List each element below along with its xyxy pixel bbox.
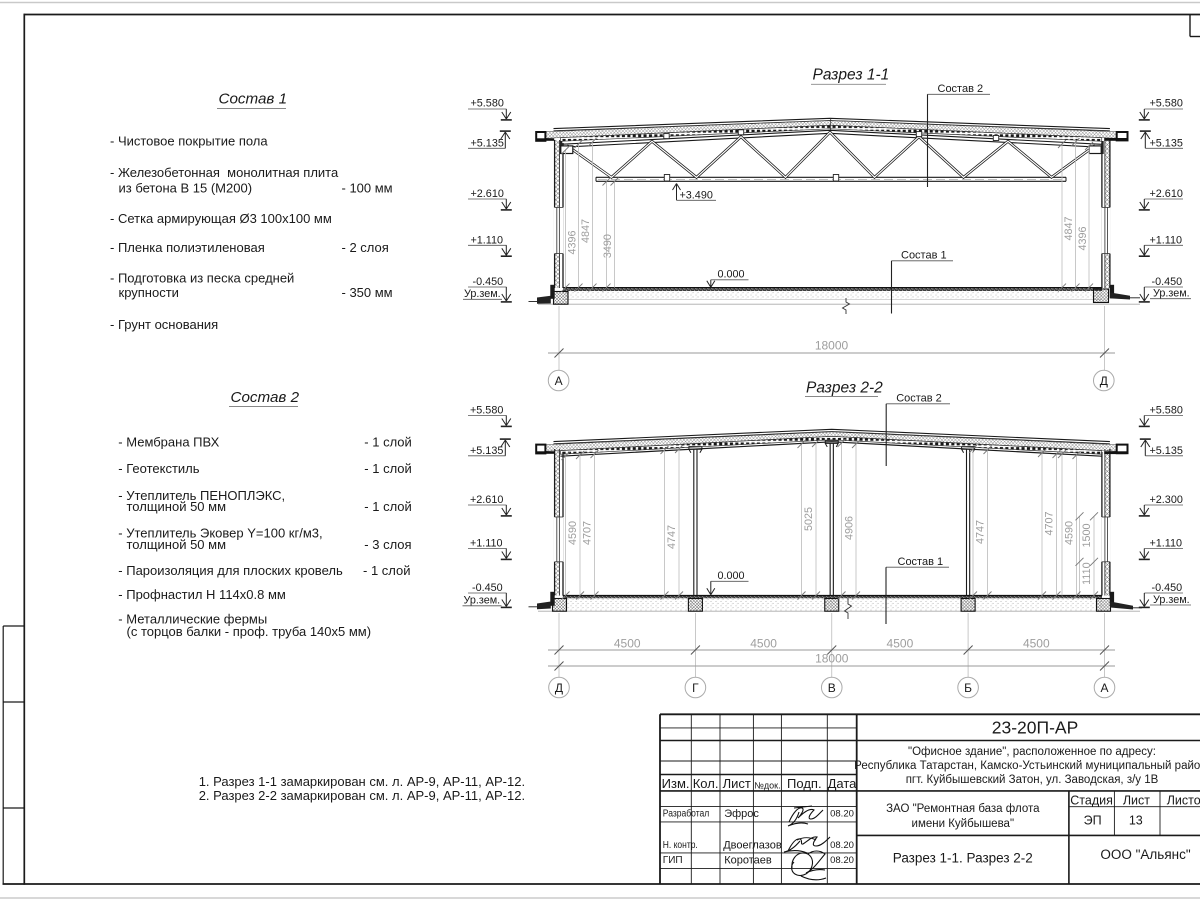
svg-text:+3.490: +3.490 [680,189,713,201]
svg-text:4906: 4906 [843,516,855,540]
svg-text:08.20: 08.20 [830,809,854,820]
svg-text:- Мембрана ПВХ: - Мембрана ПВХ [118,435,219,450]
svg-text:4590: 4590 [1064,521,1076,545]
svg-text:Двоеглазов: Двоеглазов [723,839,782,851]
svg-text:4500: 4500 [614,636,641,650]
svg-text:- Пленка полиэтиленовая: - Пленка полиэтиленовая [110,240,265,255]
svg-text:4500: 4500 [887,636,914,650]
svg-text:Разработал: Разработал [663,808,710,820]
svg-text:4590: 4590 [567,521,579,545]
svg-text:- 1 слой: - 1 слой [364,435,412,450]
svg-text:+5.580: +5.580 [471,98,504,110]
svg-text:№док.: №док. [754,781,780,791]
svg-text:- 1 слой: - 1 слой [364,461,412,476]
svg-text:- Железобетонная монолитная п: - Железобетонная монолитная плита [110,165,339,180]
svg-text:0.000: 0.000 [718,570,745,582]
svg-text:-0.450: -0.450 [1152,582,1183,594]
svg-text:- Подготовка из песка средней: - Подготовка из песка средней [110,271,294,286]
svg-text:+2.610: +2.610 [471,188,504,200]
svg-text:3490: 3490 [602,234,614,258]
svg-text:Состав 1: Состав 1 [901,250,947,262]
svg-text:Разрез 2-2: Разрез 2-2 [806,380,883,397]
svg-text:Подп.: Подп. [787,776,822,791]
svg-text:Состав 1: Состав 1 [898,556,944,568]
svg-text:из бетона В 15 (М200): из бетона В 15 (М200) [119,181,253,196]
svg-text:4747: 4747 [666,525,678,549]
svg-text:Н. контр.: Н. контр. [663,840,698,851]
svg-text:Состав 2: Состав 2 [938,83,984,95]
svg-text:08.20: 08.20 [830,840,854,851]
svg-text:+5.135: +5.135 [470,445,503,457]
svg-text:0.000: 0.000 [718,268,745,280]
svg-text:ЗАО "Ремонтная база флота: ЗАО "Ремонтная база флота [886,803,1040,815]
svg-text:-0.450: -0.450 [472,582,503,594]
svg-text:Дата: Дата [828,776,858,791]
svg-text:1. Разрез 1-1 замаркирован см.: 1. Разрез 1-1 замаркирован см. л. АР-9, … [199,774,525,789]
svg-text:Состав 1: Состав 1 [219,91,288,108]
svg-text:Ур.зем.: Ур.зем. [464,595,501,607]
svg-text:- Пароизоляция для плоских кро: - Пароизоляция для плоских кровель [118,563,343,578]
svg-text:ООО "Альянс": ООО "Альянс" [1100,847,1190,862]
svg-text:Изм.: Изм. [662,776,690,791]
svg-text:-0.450: -0.450 [473,276,504,288]
svg-text:Ур.зем.: Ур.зем. [464,288,501,300]
svg-text:ЭП: ЭП [1084,814,1102,828]
svg-text:4847: 4847 [580,219,592,243]
svg-text:+5.135: +5.135 [1150,137,1183,149]
svg-text:4747: 4747 [975,520,987,544]
svg-text:-0.450: -0.450 [1152,276,1183,288]
svg-text:+1.110: +1.110 [1150,234,1183,246]
svg-text:08.20: 08.20 [830,855,854,866]
svg-text:4500: 4500 [1023,636,1050,650]
svg-text:+2.610: +2.610 [470,494,503,506]
svg-text:+2.300: +2.300 [1150,494,1183,506]
svg-text:Республика Татарстан, Камско-У: Республика Татарстан, Камско-Устьинский … [854,760,1200,772]
svg-text:- 3 слоя: - 3 слоя [364,537,411,552]
svg-text:1500: 1500 [1081,523,1093,547]
svg-text:"Офисное здание", расположенно: "Офисное здание", расположенное по адрес… [908,746,1156,758]
svg-text:+5.135: +5.135 [1150,445,1183,457]
svg-text:имени Куйбышева": имени Куйбышева" [912,818,1015,830]
svg-text:4500: 4500 [750,636,777,650]
svg-text:Ур.зем.: Ур.зем. [1153,594,1190,606]
svg-text:- 350 мм: - 350 мм [342,285,393,300]
svg-text:Д: Д [1100,374,1108,388]
svg-text:1110: 1110 [1081,562,1093,584]
svg-text:+5.580: +5.580 [1150,405,1183,417]
svg-text:- 1 слой: - 1 слой [363,563,411,578]
svg-text:4707: 4707 [1044,511,1056,535]
svg-text:пгт. Куйбышевский Затон, ул. З: пгт. Куйбышевский Затон, ул. Заводская, … [906,774,1159,786]
svg-text:Состав 2: Состав 2 [231,389,300,406]
svg-text:+5.580: +5.580 [1150,98,1183,110]
svg-text:+5.580: +5.580 [470,405,503,417]
svg-text:толщиной 50 мм: толщиной 50 мм [127,499,227,514]
svg-text:Разрез 1-1: Разрез 1-1 [813,67,890,84]
svg-text:А: А [1100,681,1108,695]
svg-text:Лист: Лист [723,776,751,791]
svg-text:ГИП: ГИП [663,855,683,866]
svg-text:4396: 4396 [567,230,579,254]
svg-text:крупности: крупности [119,285,179,300]
svg-text:Листов: Листов [1167,793,1200,807]
svg-text:+1.110: +1.110 [1150,538,1183,550]
svg-text:- Сетка армирующая Ø3 100х100: - Сетка армирующая Ø3 100х100 мм [110,211,332,226]
svg-text:- 1 слой: - 1 слой [364,499,412,514]
svg-text:13: 13 [1129,814,1143,828]
svg-text:5025: 5025 [803,507,815,531]
svg-text:Стадия: Стадия [1070,793,1113,807]
svg-text:4847: 4847 [1063,216,1075,240]
svg-text:- 2 слоя: - 2 слоя [342,240,389,255]
svg-text:толщиной 50 мм: толщиной 50 мм [127,537,227,552]
svg-text:18000: 18000 [815,652,849,666]
svg-text:Состав 2: Состав 2 [896,393,942,405]
svg-text:Кол.: Кол. [693,776,719,791]
svg-text:- Грунт основания: - Грунт основания [110,317,218,332]
svg-text:- 100 мм: - 100 мм [342,181,393,196]
svg-text:Разрез 1-1. Разрез 2-2: Разрез 1-1. Разрез 2-2 [893,851,1033,866]
svg-text:Коротаев: Коротаев [724,854,772,866]
svg-text:Г: Г [692,681,699,695]
svg-text:+1.110: +1.110 [471,234,504,246]
svg-text:4707: 4707 [582,521,594,545]
svg-text:Эфрос: Эфрос [724,808,759,820]
svg-text:В: В [828,681,836,695]
svg-text:4396: 4396 [1077,226,1089,250]
svg-text:- Чистовое покрытие пола: - Чистовое покрытие пола [110,134,268,149]
svg-text:+5.135: +5.135 [471,137,504,149]
svg-text:18000: 18000 [815,339,849,353]
svg-text:- Профнастил Н 114х0.8 мм: - Профнастил Н 114х0.8 мм [118,587,286,602]
svg-text:Д: Д [555,681,563,695]
svg-text:2. Разрез 2-2 замаркирован см.: 2. Разрез 2-2 замаркирован см. л. АР-9, … [199,788,525,803]
svg-text:А: А [555,374,563,388]
svg-text:- Геотекстиль: - Геотекстиль [118,461,199,476]
svg-text:Б: Б [964,681,972,695]
svg-text:(с торцов балки - проф. труба: (с торцов балки - проф. труба 140х5 мм) [127,624,372,639]
svg-text:Ур.зем.: Ур.зем. [1153,288,1190,300]
svg-text:+2.610: +2.610 [1150,188,1183,200]
svg-text:+1.110: +1.110 [470,538,503,550]
svg-text:Лист: Лист [1123,793,1150,807]
svg-text:23-20П-АР: 23-20П-АР [992,718,1079,738]
